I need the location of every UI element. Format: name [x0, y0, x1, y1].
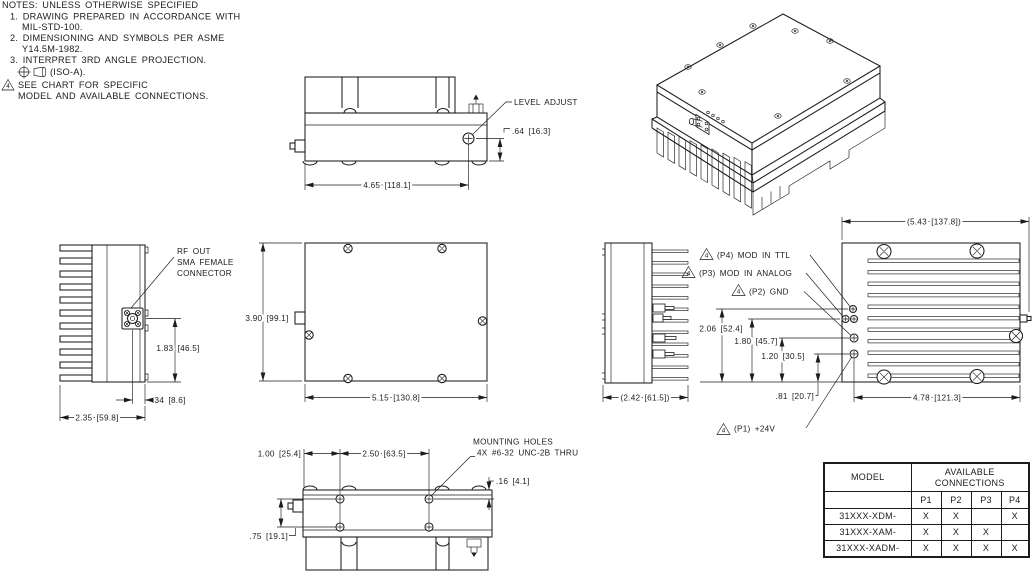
dim-p4-height: 2.06 [52.4]	[699, 325, 742, 334]
mounting-view: 1.00 [25.4] 2.50 [63.5] .16 [4.1] .75 [1…	[250, 438, 579, 571]
heatsink-slots	[341, 537, 449, 570]
mounting-screws	[877, 244, 1023, 384]
dim-p3-height: 1.80 [45.7]	[734, 337, 777, 346]
iso-sma-connector-icon	[689, 115, 709, 135]
note-2-line-2: Y14.5M-1982.	[22, 44, 83, 54]
dim-front-width: 4.65 [118.1]	[363, 181, 410, 190]
module-outline	[842, 243, 1020, 382]
left-side-view: RF OUT SMA FEMALE CONNECTOR 1.83 [46.5] …	[60, 245, 234, 423]
note-4-flag-icon: 4	[2, 80, 14, 91]
p2-cell: X	[941, 509, 971, 525]
notes-block: NOTES: UNLESS OTHERWISE SPECIFIED 1. DRA…	[2, 0, 240, 101]
p2-cell: X	[941, 525, 971, 541]
model-cell: 31XXX-XADM-	[824, 541, 911, 558]
heatsink-fins	[868, 259, 1019, 377]
note-1-line-2: MIL-STD-100.	[22, 22, 83, 32]
port-header-p1: P1	[911, 492, 941, 509]
note-2-line-1: 2. DIMENSIONING AND SYMBOLS PER ASME	[10, 33, 225, 43]
dim-hole-rows: .75 [19.1]	[250, 532, 288, 541]
rf-out-leader	[131, 257, 174, 308]
dim-depth: 2.35 [59.8]	[75, 414, 118, 423]
table-row: 31XXX-XDM- X X X	[824, 509, 1029, 525]
trimmer-icon	[467, 539, 481, 557]
heatsink-fins	[60, 245, 92, 381]
dim-hole-to-edge: .16 [4.1]	[496, 477, 530, 486]
iso-screws	[685, 24, 850, 119]
mounting-holes-label-1: MOUNTING HOLES	[473, 438, 553, 447]
note-4-flag: 4	[6, 83, 10, 90]
port-p2-callout: 4 (P2) GND	[732, 285, 851, 336]
isometric-view	[652, 14, 885, 215]
p1-cell: X	[911, 525, 941, 541]
p4-cell: X	[1001, 509, 1029, 525]
p3-cell: X	[971, 541, 1001, 558]
p4-cell	[1001, 525, 1029, 541]
module-body	[605, 243, 652, 383]
front-view: LEVEL ADJUST .64 [16.3] 4.65 [118.1]	[290, 77, 578, 190]
empty-cell	[824, 492, 911, 509]
dim-level-adjust: .64 [16.3]	[512, 127, 550, 136]
rf-connector-stub	[295, 312, 305, 324]
rf-out-label-2: SMA FEMALE	[177, 258, 234, 267]
port-p4-label: (P4) MOD IN TTL	[717, 251, 790, 260]
dim-overall-width: (5.43 [137.8])	[907, 218, 961, 227]
table-row: 31XXX-XADM- X X X X	[824, 541, 1029, 558]
rf-out-label-1: RF OUT	[177, 247, 211, 256]
p4-cell: X	[1001, 541, 1029, 558]
level-adjust-label: LEVEL ADJUST	[514, 98, 578, 107]
notes-header: NOTES: UNLESS OTHERWISE SPECIFIED	[2, 0, 198, 10]
p3-cell	[971, 509, 1001, 525]
dim-p2-height: 1.20 [30.5]	[761, 352, 804, 361]
port-header-p4: P4	[1001, 492, 1029, 509]
module-outline	[305, 243, 487, 381]
dim-connector-offset: .34 [8.6]	[152, 396, 186, 405]
top-view: 3.90 [99.1] 5.15 [130.8]	[245, 243, 487, 403]
table-row: 31XXX-XAM- X X X	[824, 525, 1029, 541]
p3-cell: X	[971, 525, 1001, 541]
right-side-view: (2.42 [61.5])	[602, 243, 688, 403]
rf-connector-stub	[295, 140, 305, 152]
heatsink-profile	[305, 77, 455, 113]
rf-connector-stub	[1020, 315, 1027, 322]
projection-cone-icon	[34, 67, 46, 77]
dim-top-width: 5.15 [130.8]	[372, 394, 420, 403]
p1-cell: X	[911, 541, 941, 558]
level-adjust-screw-icon	[463, 133, 474, 144]
feedthrough-terminals	[842, 306, 858, 359]
note-1-line-1: 1. DRAWING PREPARED IN ACCORDANCE WITH	[10, 12, 240, 22]
dim-p1-height: .81 [20.7]	[776, 392, 814, 401]
flag-number: 4	[722, 428, 726, 435]
note-3-line-2: (ISO-A).	[50, 67, 86, 77]
avail-line1: AVAILABLE	[912, 467, 1029, 477]
port-p3-label: (P3) MOD IN ANALOG	[699, 269, 792, 278]
module-body	[305, 113, 487, 161]
flag-number: 4	[737, 289, 741, 296]
feet	[303, 486, 486, 490]
dim-hole-spacing: 2.50 [63.5]	[362, 450, 405, 459]
dim-connector-height: 1.83 [46.5]	[156, 344, 199, 353]
note-3-line-1: 3. INTERPRET 3RD ANGLE PROJECTION.	[10, 55, 206, 65]
dim-edge-to-hole: 1.00 [25.4]	[258, 450, 301, 459]
cover-screws	[305, 244, 487, 382]
mounting-holes	[336, 495, 433, 531]
port-p1-label: (P1) +24V	[734, 425, 775, 434]
level-adjust-leader	[473, 102, 513, 135]
dim-side-depth: (2.42 [61.5])	[620, 394, 669, 403]
model-header-cell: MODEL	[824, 463, 911, 492]
feet	[303, 161, 486, 165]
port-header-p3: P3	[971, 492, 1001, 509]
note-4-line-1: SEE CHART FOR SPECIFIC	[18, 80, 148, 90]
note-4-line-2: MODEL AND AVAILABLE CONNECTIONS.	[18, 91, 208, 101]
heatsink-profile	[306, 537, 488, 570]
sma-connector-icon	[122, 308, 143, 329]
rf-out-label-3: CONNECTOR	[177, 269, 232, 278]
connections-table: MODEL AVAILABLE CONNECTIONS P1 P2 P3 P4 …	[823, 462, 1028, 558]
avail-line2: CONNECTIONS	[912, 478, 1029, 488]
p1-cell: X	[911, 509, 941, 525]
mounting-holes-label-2: 4X #6-32 UNC-2B THRU	[477, 449, 578, 458]
flag-number: 4	[705, 253, 709, 260]
projection-target-icon	[18, 66, 31, 79]
dim-mounting-width: 4.78 [121.3]	[913, 394, 961, 403]
dim-top-height: 3.90 [99.1]	[245, 314, 288, 323]
model-cell: 31XXX-XDM-	[824, 509, 911, 525]
heatsink-slot	[342, 77, 358, 113]
drawing-sheet: NOTES: UNLESS OTHERWISE SPECIFIED 1. DRA…	[0, 0, 1033, 577]
available-connections-header-cell: AVAILABLE CONNECTIONS	[911, 463, 1029, 492]
p2-cell: X	[941, 541, 971, 558]
rf-connector-stub	[293, 500, 303, 512]
flag-number: 4	[687, 271, 691, 278]
hole-centerlines	[340, 494, 429, 532]
heatsink-bottom-view: (5.43 [137.8]) 4.78 [121.3] 2.06 [52.4] …	[682, 217, 1031, 435]
port-p2-label: (P2) GND	[749, 288, 789, 297]
heatsink-slot	[436, 77, 449, 113]
trimmer-icon	[469, 95, 483, 114]
port-header-p2: P2	[941, 492, 971, 509]
model-cell: 31XXX-XAM-	[824, 525, 911, 541]
